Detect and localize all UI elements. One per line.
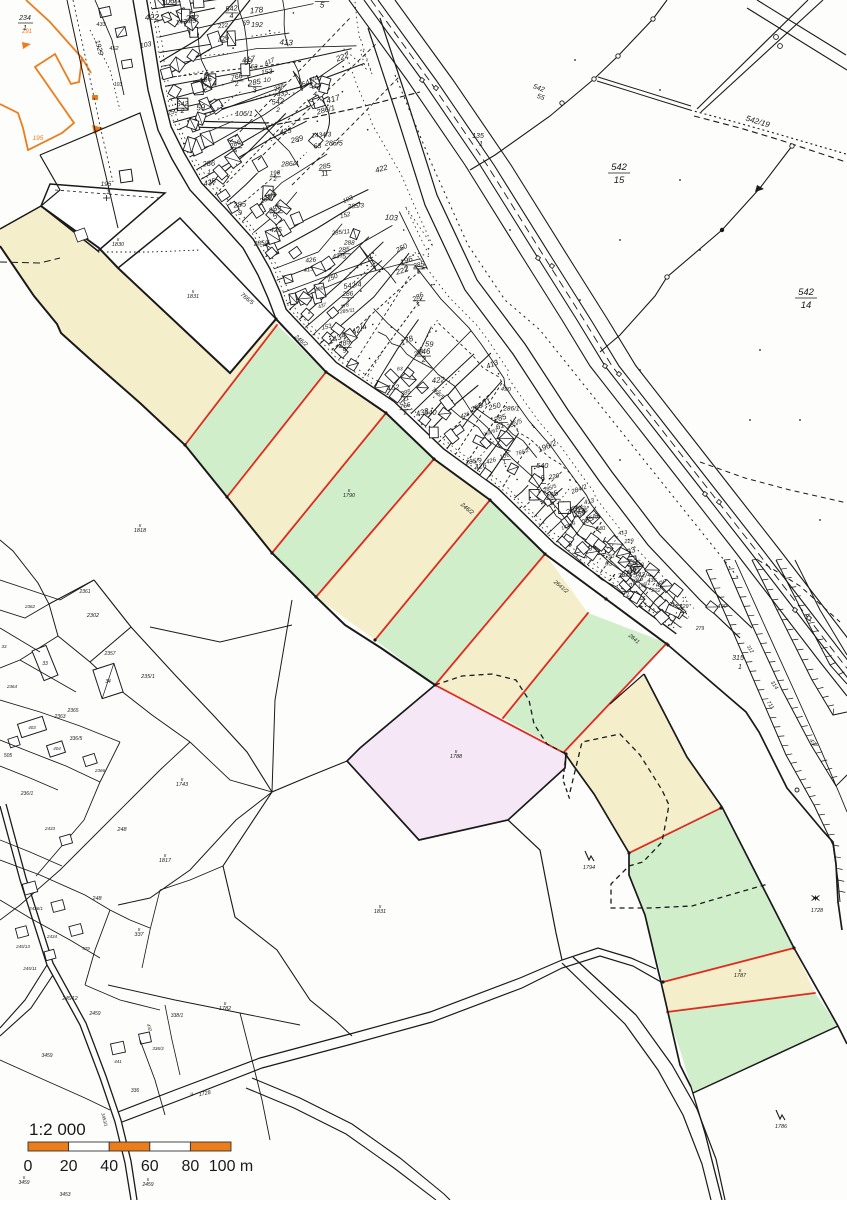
svg-text:540: 540 <box>536 461 548 470</box>
svg-text:15: 15 <box>614 175 625 186</box>
svg-text:63: 63 <box>250 63 258 70</box>
svg-text:1:2 000: 1:2 000 <box>29 1120 86 1139</box>
svg-text:279: 279 <box>695 626 705 632</box>
svg-text:248: 248 <box>91 896 102 902</box>
svg-text:337: 337 <box>134 932 144 938</box>
svg-text:3459: 3459 <box>18 1180 29 1186</box>
svg-text:63: 63 <box>397 366 403 372</box>
svg-text:2362: 2362 <box>24 604 36 609</box>
svg-text:245/11: 245/11 <box>22 966 37 971</box>
svg-text:288: 288 <box>343 239 355 246</box>
svg-text:422: 422 <box>431 375 445 385</box>
svg-text:2: 2 <box>275 107 280 114</box>
svg-text:436: 436 <box>647 578 657 584</box>
svg-text:10: 10 <box>263 77 271 84</box>
svg-text:2436/1: 2436/1 <box>28 906 43 911</box>
svg-text:1743: 1743 <box>176 782 189 788</box>
svg-text:315: 315 <box>732 655 744 662</box>
svg-text:1790: 1790 <box>343 493 356 499</box>
svg-text:222: 222 <box>650 588 660 594</box>
svg-text:3459: 3459 <box>41 1053 52 1059</box>
svg-text:103: 103 <box>385 213 399 223</box>
svg-text:1817: 1817 <box>159 858 172 864</box>
svg-text:542: 542 <box>271 96 285 106</box>
svg-text:285: 285 <box>232 199 247 209</box>
svg-text:59: 59 <box>425 339 435 349</box>
svg-text:2302: 2302 <box>86 613 99 619</box>
svg-text:1: 1 <box>106 189 110 196</box>
svg-text:542: 542 <box>611 162 628 173</box>
svg-text:490: 490 <box>500 386 511 394</box>
svg-text:1: 1 <box>23 25 27 32</box>
svg-text:1794: 1794 <box>583 865 595 871</box>
svg-text:2366: 2366 <box>94 768 106 773</box>
svg-text:1831: 1831 <box>374 909 386 915</box>
svg-text:2364: 2364 <box>6 684 18 689</box>
svg-text:404: 404 <box>53 746 61 751</box>
svg-text:413: 413 <box>279 38 293 48</box>
svg-text:229: 229 <box>623 538 634 545</box>
svg-text:192: 192 <box>251 22 263 29</box>
svg-text:0: 0 <box>24 1158 33 1175</box>
svg-text:40: 40 <box>100 1158 118 1175</box>
svg-text:195: 195 <box>33 135 44 142</box>
svg-text:336/5: 336/5 <box>70 736 83 742</box>
svg-text:1434/3: 1434/3 <box>311 131 332 139</box>
svg-text:1818: 1818 <box>134 528 147 534</box>
svg-text:286: 286 <box>201 158 216 168</box>
svg-text:490: 490 <box>717 604 727 610</box>
svg-text:2357: 2357 <box>103 651 115 657</box>
svg-text:2433: 2433 <box>44 826 56 831</box>
svg-text:1: 1 <box>738 664 742 671</box>
svg-text:135: 135 <box>472 133 484 140</box>
svg-text:33: 33 <box>42 661 48 667</box>
svg-text:1728: 1728 <box>811 908 824 914</box>
svg-text:14: 14 <box>801 300 812 311</box>
svg-text:2: 2 <box>179 108 184 115</box>
svg-text:59: 59 <box>196 102 206 112</box>
svg-text:245/12: 245/12 <box>61 996 78 1002</box>
svg-text:286/1: 286/1 <box>502 406 520 413</box>
svg-text:60: 60 <box>141 1158 159 1175</box>
svg-text:2365: 2365 <box>66 708 78 714</box>
svg-text:542: 542 <box>309 83 321 90</box>
svg-text:437: 437 <box>332 252 344 260</box>
svg-text:248: 248 <box>116 827 127 833</box>
svg-text:2434: 2434 <box>46 934 58 939</box>
svg-text:236/1: 236/1 <box>20 791 34 797</box>
svg-text:1786: 1786 <box>775 1124 788 1130</box>
svg-text:9: 9 <box>238 210 242 217</box>
svg-text:245/13: 245/13 <box>15 944 30 949</box>
svg-text:336: 336 <box>131 1088 140 1094</box>
svg-text:33: 33 <box>1 644 7 649</box>
svg-text:100 m: 100 m <box>209 1158 253 1175</box>
svg-text:11: 11 <box>321 169 330 178</box>
svg-text:425: 425 <box>270 227 282 234</box>
svg-text:246/2: 246/2 <box>571 506 587 512</box>
svg-text:63: 63 <box>313 142 322 151</box>
svg-text:1788: 1788 <box>450 754 463 760</box>
svg-text:250: 250 <box>605 554 615 560</box>
svg-text:336/3: 336/3 <box>152 1046 164 1051</box>
svg-text:2459: 2459 <box>88 1011 100 1017</box>
svg-text:338/1: 338/1 <box>171 1013 184 1019</box>
svg-text:2: 2 <box>203 85 208 92</box>
svg-text:229: 229 <box>678 604 688 610</box>
svg-text:234: 234 <box>18 15 31 22</box>
svg-text:1: 1 <box>207 169 211 176</box>
svg-text:403: 403 <box>28 725 36 730</box>
svg-text:3453: 3453 <box>59 1192 70 1198</box>
svg-text:505: 505 <box>4 753 13 759</box>
svg-text:178: 178 <box>249 5 264 15</box>
svg-text:20: 20 <box>60 1158 78 1175</box>
svg-text:542: 542 <box>798 287 815 298</box>
svg-text:426: 426 <box>305 256 317 264</box>
svg-text:1787: 1787 <box>734 973 747 979</box>
svg-text:441: 441 <box>114 1059 122 1064</box>
svg-text:1831: 1831 <box>187 294 199 300</box>
svg-text:195: 195 <box>101 181 112 188</box>
svg-text:103: 103 <box>267 192 276 199</box>
svg-text:2361: 2361 <box>78 589 90 595</box>
svg-text:2459: 2459 <box>141 1182 153 1188</box>
svg-text:34: 34 <box>105 679 111 685</box>
svg-text:152: 152 <box>387 384 399 392</box>
svg-text:422: 422 <box>145 12 160 22</box>
svg-text:286/4: 286/4 <box>280 161 299 169</box>
svg-text:1830: 1830 <box>112 242 125 248</box>
svg-text:1: 1 <box>479 141 483 148</box>
svg-text:4: 4 <box>313 91 317 98</box>
svg-text:80: 80 <box>182 1158 200 1175</box>
svg-text:106/1: 106/1 <box>235 111 253 118</box>
svg-text:235/1: 235/1 <box>140 674 155 680</box>
